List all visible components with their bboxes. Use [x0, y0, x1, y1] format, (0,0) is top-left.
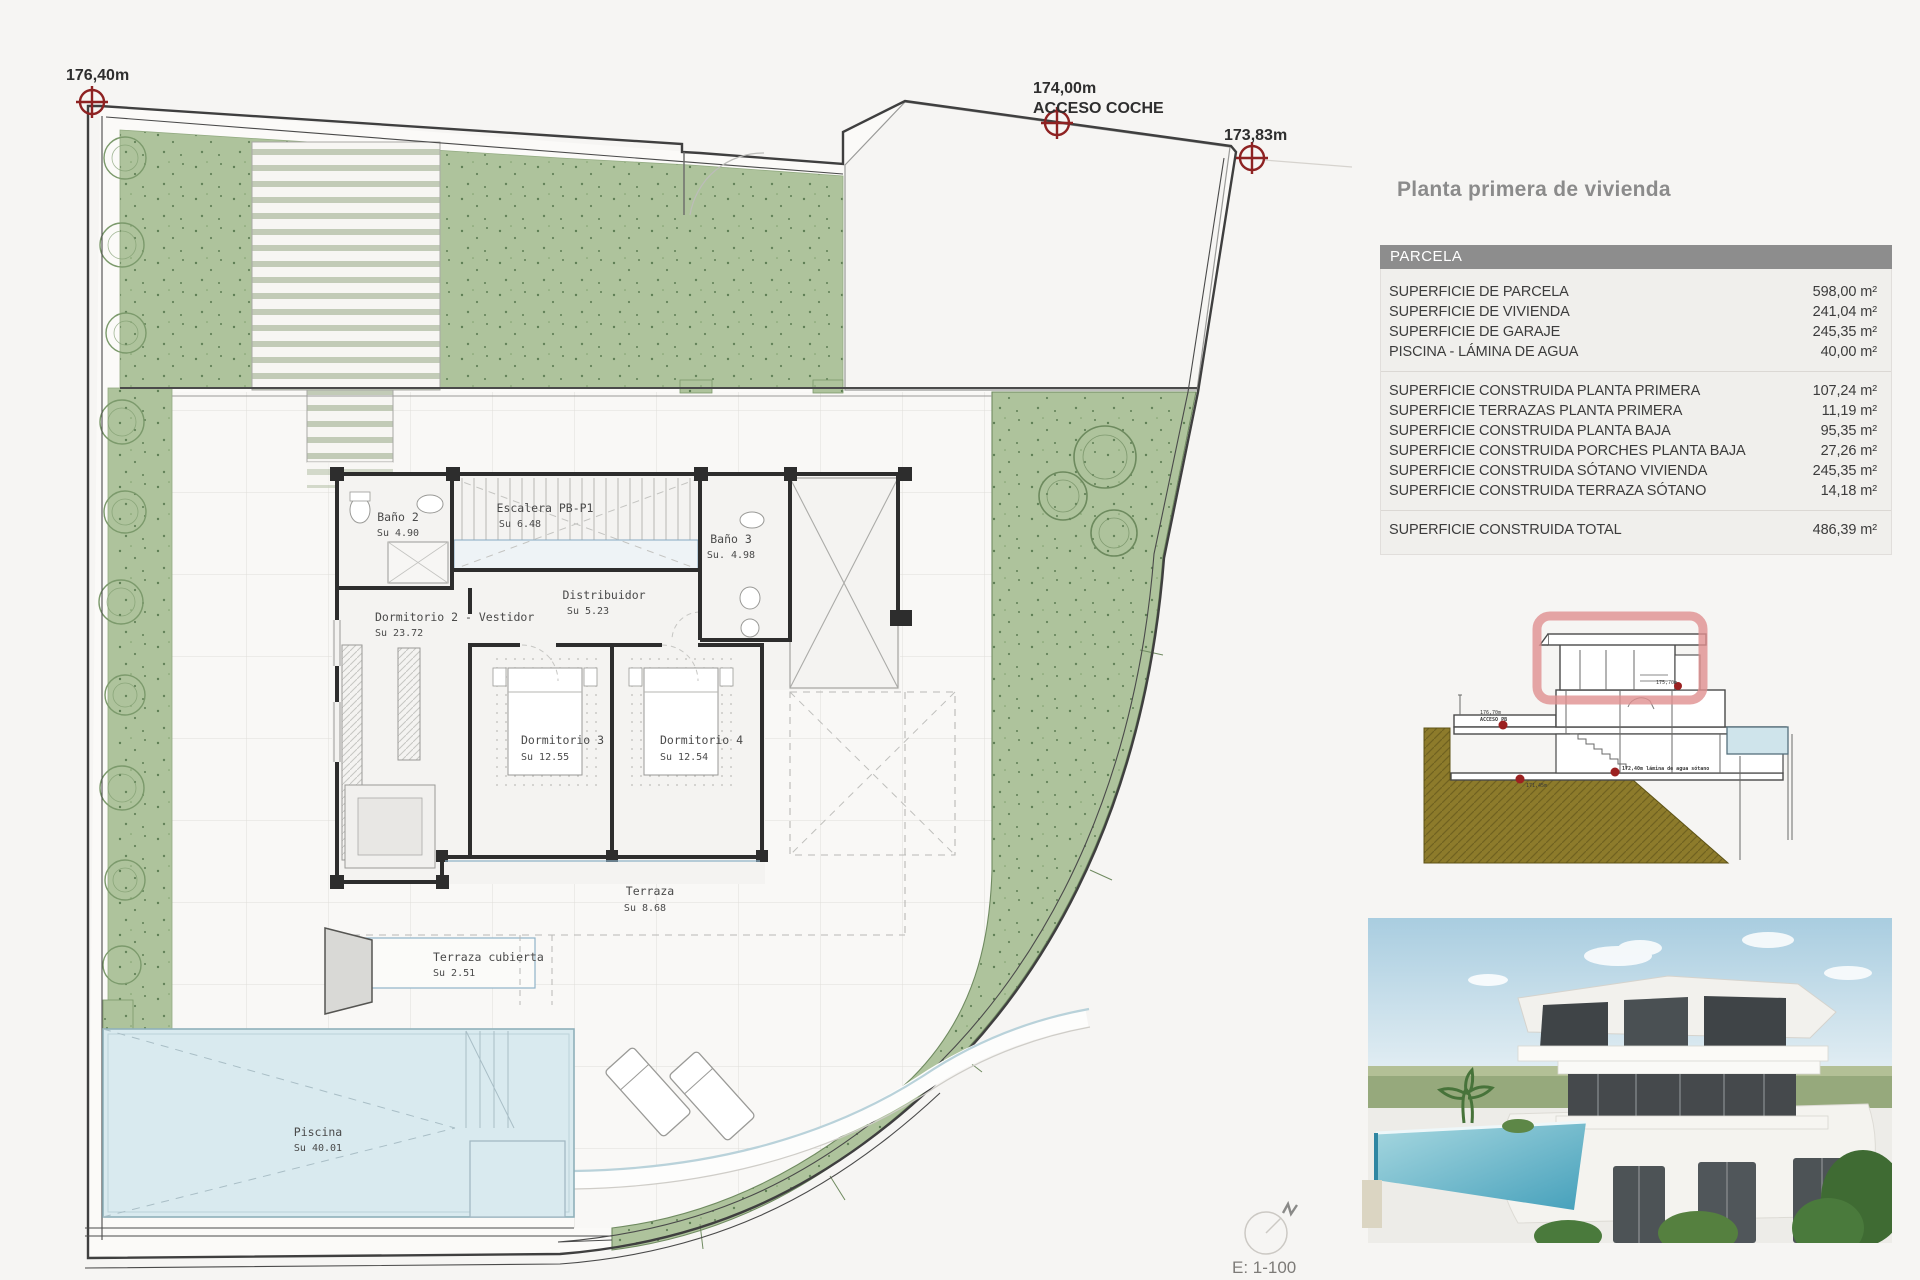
render-image [1368, 918, 1892, 1243]
row-value: 241,04 m² [1813, 302, 1877, 322]
row-value: 245,35 m² [1813, 322, 1877, 342]
table-row: SUPERFICIE CONSTRUIDA PORCHES PLANTA BAJ… [1389, 441, 1877, 461]
room-escalera-name: Escalera PB-P1 [497, 501, 594, 515]
row-value: 107,24 m² [1813, 381, 1877, 401]
row-label: SUPERFICIE CONSTRUIDA SÓTANO VIVIENDA [1389, 461, 1707, 481]
room-dorm2-name: Dormitorio 2 - Vestidor [375, 610, 534, 624]
row-value: 598,00 m² [1813, 282, 1877, 302]
architectural-sheet: Baño 2 Su 4.90 Escalera PB-P1 Su 6.48 Ba… [0, 0, 1920, 1280]
driveway-area [845, 102, 1230, 390]
row-label: SUPERFICIE CONSTRUIDA PLANTA BAJA [1389, 421, 1671, 441]
table-row: PISCINA - LÁMINA DE AGUA40,00 m² [1389, 342, 1877, 362]
row-value: 40,00 m² [1821, 342, 1877, 362]
row-value: 486,39 m² [1813, 520, 1877, 540]
pool-skimmer [470, 1141, 565, 1217]
table-body: SUPERFICIE DE PARCELA598,00 m² SUPERFICI… [1380, 269, 1892, 555]
room-dorm3-name: Dormitorio 3 [521, 733, 604, 747]
pool [103, 1029, 574, 1217]
room-bano3-area: Su. 4.98 [707, 550, 755, 561]
surface-table: PARCELA SUPERFICIE DE PARCELA598,00 m² S… [1380, 245, 1892, 555]
marker-label-2: 174,00m [1033, 80, 1096, 97]
section-label-3: 171,45m [1526, 783, 1547, 789]
planter-pool [103, 1000, 133, 1029]
table-row-total: SUPERFICIE CONSTRUIDA TOTAL486,39 m² [1389, 520, 1877, 540]
room-dorm4-name: Dormitorio 4 [660, 733, 743, 747]
section-label-1a: 176,70m [1480, 710, 1501, 716]
row-label: SUPERFICIE DE VIVIENDA [1389, 302, 1570, 322]
row-value: 245,35 m² [1813, 461, 1877, 481]
table-header: PARCELA [1380, 245, 1892, 269]
row-label: SUPERFICIE CONSTRUIDA TOTAL [1389, 520, 1622, 540]
row-value: 14,18 m² [1821, 481, 1877, 501]
room-terraza-name: Terraza [626, 884, 674, 898]
table-divider [1381, 510, 1891, 511]
room-distribuidor-area: Su 5.23 [567, 606, 609, 617]
room-terraza-cubierta-name: Terraza cubierta [433, 950, 544, 964]
table-row: SUPERFICIE CONSTRUIDA PLANTA BAJA95,35 m… [1389, 421, 1877, 441]
section-label-1b: ACCESO PB [1480, 717, 1507, 723]
row-label: SUPERFICIE CONSTRUIDA PLANTA PRIMERA [1389, 381, 1700, 401]
table-row: SUPERFICIE DE PARCELA598,00 m² [1389, 282, 1877, 302]
table-row: SUPERFICIE TERRAZAS PLANTA PRIMERA11,19 … [1389, 401, 1877, 421]
section-pool [1727, 727, 1788, 754]
room-piscina-area: Su 40.01 [294, 1143, 342, 1154]
row-value: 95,35 m² [1821, 421, 1877, 441]
section-label-4: 175,70m [1656, 680, 1677, 686]
section-building [1451, 634, 1786, 780]
room-escalera-area: Su 6.48 [499, 519, 541, 530]
row-label: SUPERFICIE CONSTRUIDA TERRAZA SÓTANO [1389, 481, 1706, 501]
section-drawing: 176,70m ACCESO PB 172,40m lámina de agua… [1410, 595, 1810, 885]
row-value: 11,19 m² [1822, 401, 1877, 421]
room-distribuidor-name: Distribuidor [562, 588, 645, 602]
table-row: SUPERFICIE CONSTRUIDA TERRAZA SÓTANO14,1… [1389, 481, 1877, 501]
row-label: PISCINA - LÁMINA DE AGUA [1389, 342, 1578, 362]
room-piscina-name: Piscina [294, 1125, 342, 1139]
north-icon [1283, 1204, 1297, 1214]
room-bano3-name: Baño 3 [710, 532, 752, 546]
table-row: SUPERFICIE DE GARAJE245,35 m² [1389, 322, 1877, 342]
row-label: SUPERFICIE TERRAZAS PLANTA PRIMERA [1389, 401, 1682, 421]
marker-label-1: 176,40m [66, 67, 129, 84]
room-terraza-cubierta-area: Su 2.51 [433, 968, 475, 979]
page-title: Planta primera de vivienda [1397, 178, 1671, 202]
scale-label: E: 1-100 [1232, 1258, 1296, 1277]
north-and-scale: E: 1-100 [1232, 1204, 1297, 1277]
table-row: SUPERFICIE CONSTRUIDA PLANTA PRIMERA107,… [1389, 381, 1877, 401]
garden-top-left [120, 130, 843, 388]
marker-sublabel-2: ACCESO COCHE [1033, 100, 1164, 117]
table-row: SUPERFICIE CONSTRUIDA SÓTANO VIVIENDA245… [1389, 461, 1877, 481]
section-label-2: 172,40m lámina de agua sótano [1622, 765, 1709, 772]
room-bano2-name: Baño 2 [377, 510, 419, 524]
legend-swatch [1362, 1180, 1382, 1228]
room-dorm2-area: Su 23.72 [375, 628, 423, 639]
room-dorm4-area: Su 12.54 [660, 752, 708, 763]
room-bano2-area: Su 4.90 [377, 528, 419, 539]
table-divider [1381, 371, 1891, 372]
row-value: 27,26 m² [1821, 441, 1877, 461]
planter-2 [813, 380, 843, 393]
row-label: SUPERFICIE DE PARCELA [1389, 282, 1569, 302]
marker-label-3: 173,83m [1224, 127, 1287, 144]
room-terraza-area: Su 8.68 [624, 903, 666, 914]
row-label: SUPERFICIE CONSTRUIDA PORCHES PLANTA BAJ… [1389, 441, 1746, 461]
floor-plan-drawing: Baño 2 Su 4.90 Escalera PB-P1 Su 6.48 Ba… [0, 0, 1370, 1280]
table-row: SUPERFICIE DE VIVIENDA241,04 m² [1389, 302, 1877, 322]
planter-1 [680, 380, 712, 393]
room-dorm3-area: Su 12.55 [521, 752, 569, 763]
row-label: SUPERFICIE DE GARAJE [1389, 322, 1560, 342]
